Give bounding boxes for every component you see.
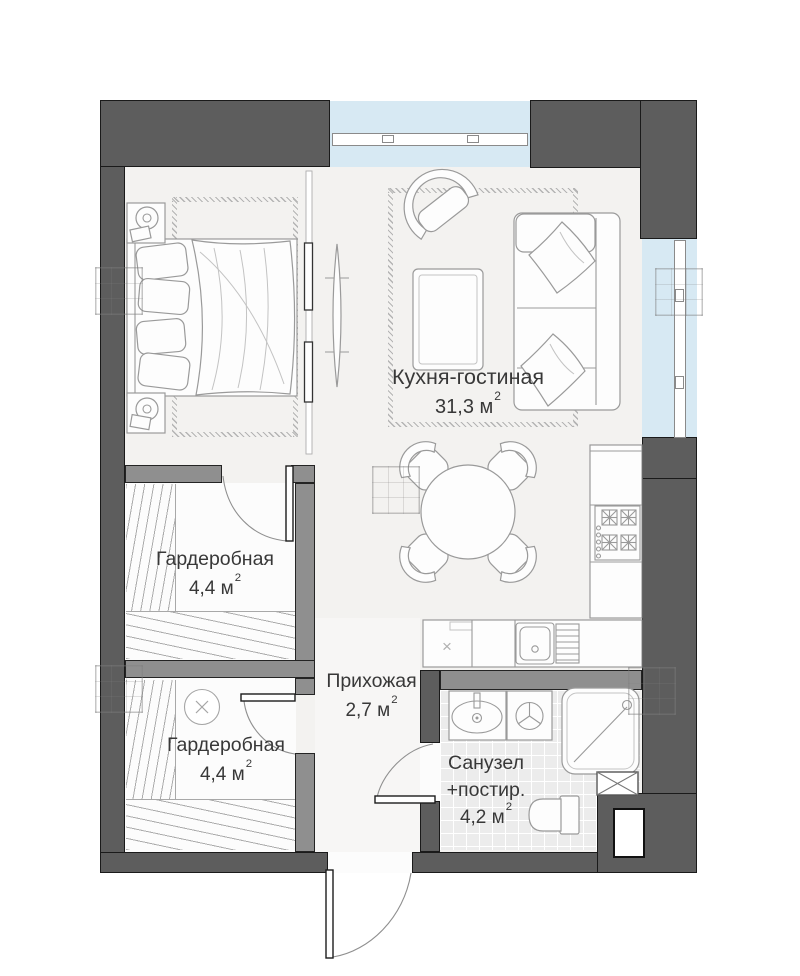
watermark-icon	[95, 665, 143, 713]
wall-right-mid	[642, 437, 697, 481]
watermark-icon	[628, 667, 676, 715]
wall-left	[100, 100, 125, 873]
wall-top-right-a	[530, 100, 642, 168]
wall-bottom-mid	[412, 852, 598, 873]
room-name: Санузел	[443, 750, 529, 777]
window-top-handle-1	[382, 135, 394, 143]
wall-bedroom-wardrobe	[125, 465, 222, 483]
wall-top-left	[100, 100, 330, 167]
living-rug-border-bottom	[388, 422, 578, 427]
wall-top-right-b	[640, 100, 697, 239]
door-leaf-entrance	[326, 870, 333, 958]
room-label-wardrobe-top: Гардеробная 4,4 м2	[129, 547, 301, 601]
room-area: 4,2 м2	[443, 805, 529, 832]
bedroom-rug-border-bottom	[172, 432, 298, 437]
wardrobe-top-rail-bottom	[126, 611, 295, 659]
bedroom-rug-border-top	[172, 197, 298, 202]
living-rug-border-top	[388, 188, 578, 193]
room-label-wardrobe-bottom: Гардеробная 4,4 м2	[140, 733, 312, 787]
watermark-icon	[372, 466, 420, 514]
floor-bathroom-door-recess	[420, 743, 440, 801]
floor-hallway	[315, 618, 420, 852]
room-name: Прихожая	[299, 669, 444, 695]
room-name-line2: +постир.	[443, 777, 529, 804]
watermark-icon	[95, 267, 143, 315]
room-label-hallway: Прихожая 2,7 м2	[299, 669, 444, 723]
bedroom-rug-border-left	[172, 197, 177, 437]
wall-between-wardrobes	[125, 660, 315, 678]
window-right-handle-2	[675, 376, 684, 389]
door-arc-entrance	[333, 873, 411, 957]
wardrobe-bottom-rail-bottom	[126, 799, 295, 850]
room-name: Гардеробная	[140, 733, 312, 759]
wall-bottom-left	[100, 852, 328, 873]
room-area: 4,4 м2	[129, 576, 301, 601]
room-area: 4,4 м2	[140, 762, 312, 787]
wall-bedroom-wardrobe-stub	[291, 465, 315, 483]
window-top-handle-2	[467, 135, 479, 143]
room-name: Кухня-гостиная	[358, 363, 578, 391]
room-area: 2,7 м2	[299, 698, 444, 723]
bedroom-rug-border-right	[293, 197, 298, 437]
room-label-kitchen-living: Кухня-гостиная 31,3 м2	[358, 363, 578, 421]
watermark-icon	[655, 268, 703, 316]
room-label-bathroom: Санузел +постир. 4,2 м2	[443, 750, 529, 831]
window-top-frame	[332, 133, 528, 146]
floor-plan: ×	[0, 0, 800, 976]
room-area: 31,3 м2	[358, 394, 578, 420]
floor-entrance-recess	[328, 852, 412, 873]
wall-bottom-right-block	[597, 793, 697, 873]
wall-bathroom-left-lower	[420, 801, 440, 852]
shaft-niche	[613, 808, 645, 858]
wall-right	[642, 478, 697, 796]
room-name: Гардеробная	[129, 547, 301, 573]
wall-bathroom-top	[440, 670, 642, 690]
